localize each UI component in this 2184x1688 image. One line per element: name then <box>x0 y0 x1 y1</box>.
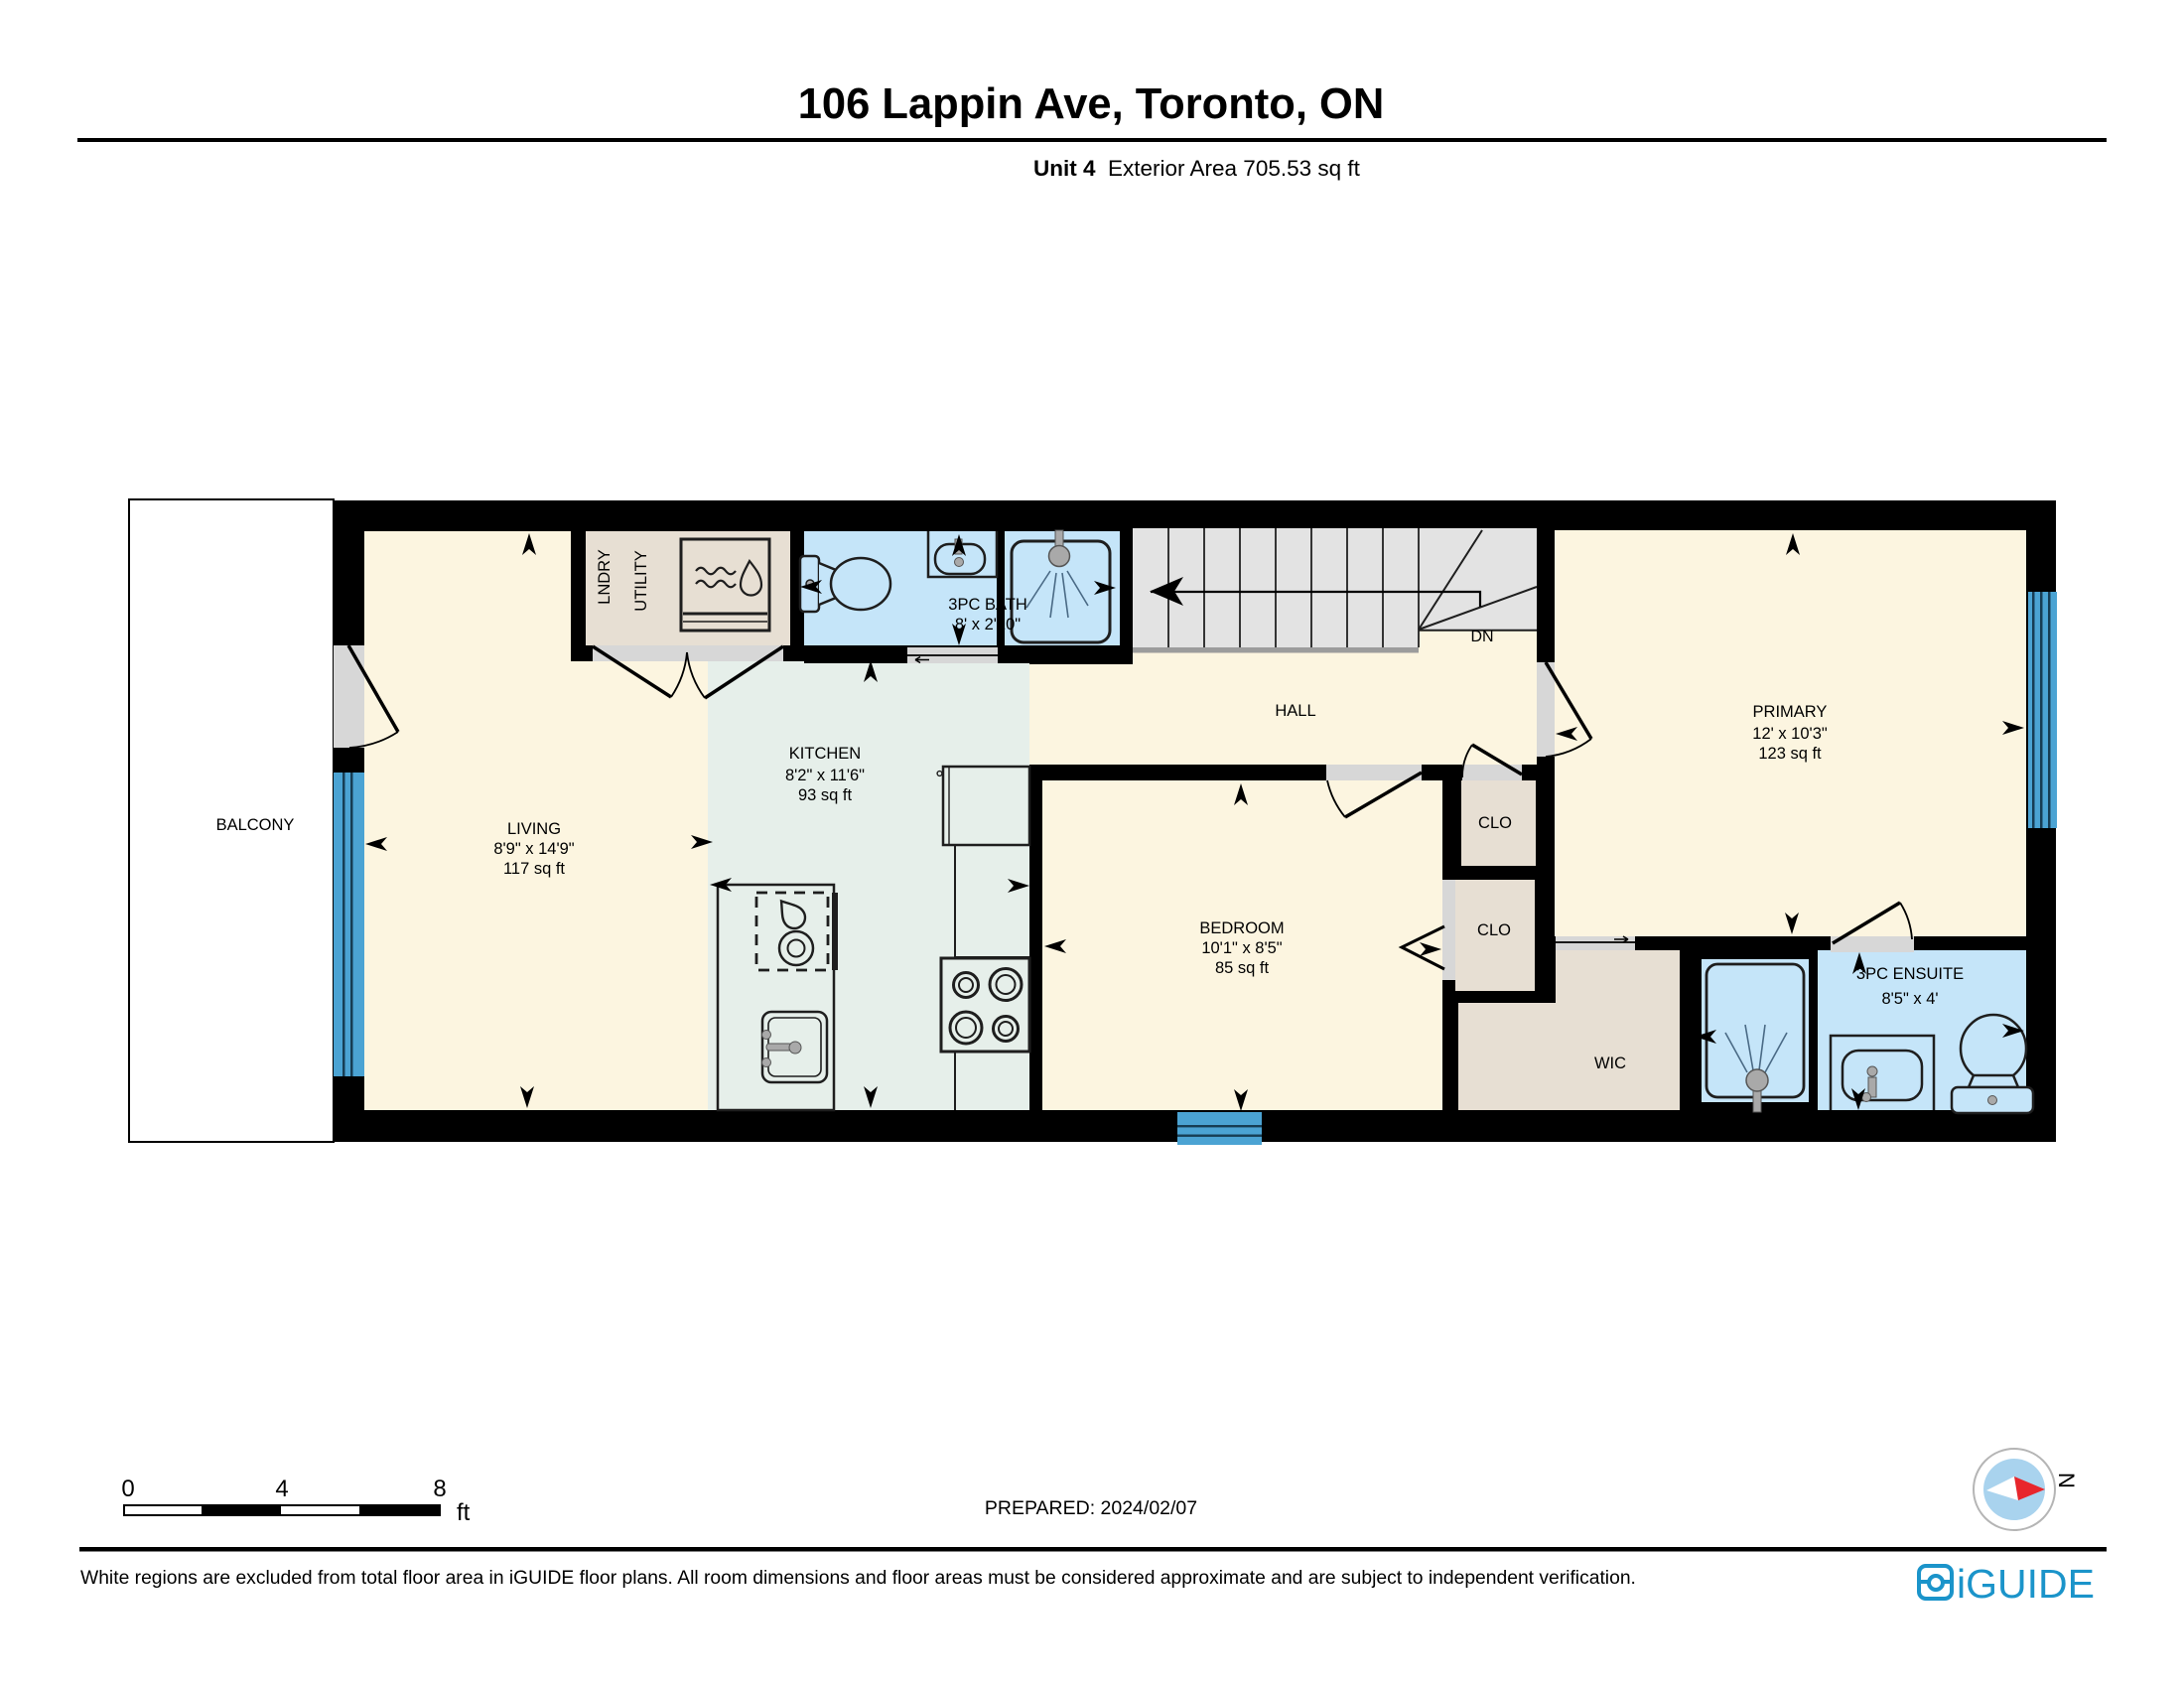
svg-text:3PC ENSUITE: 3PC ENSUITE <box>1856 965 1964 983</box>
svg-text:LIVING: LIVING <box>507 820 561 838</box>
svg-text:N: N <box>2054 1473 2079 1488</box>
svg-text:4: 4 <box>275 1476 288 1502</box>
svg-text:Exterior Area 705.53 sq ft: Exterior Area 705.53 sq ft <box>1108 156 1361 181</box>
svg-text:106 Lappin Ave, Toronto, ON: 106 Lappin Ave, Toronto, ON <box>798 80 1385 128</box>
svg-text:0: 0 <box>121 1476 134 1502</box>
svg-text:Unit 4: Unit 4 <box>1033 156 1096 181</box>
svg-text:LNDRY: LNDRY <box>596 549 614 605</box>
svg-text:85 sq ft: 85 sq ft <box>1215 959 1270 977</box>
svg-text:HALL: HALL <box>1275 702 1315 720</box>
svg-text:PREPARED: 2024/02/07: PREPARED: 2024/02/07 <box>985 1497 1197 1519</box>
svg-text:12' x 10'3": 12' x 10'3" <box>1752 725 1828 743</box>
svg-text:3PC BATH: 3PC BATH <box>948 596 1026 614</box>
svg-text:8'2" x 11'6": 8'2" x 11'6" <box>785 767 865 784</box>
svg-text:123 sq ft: 123 sq ft <box>1758 745 1822 763</box>
svg-text:ft: ft <box>457 1499 471 1526</box>
svg-text:10'1" x 8'5": 10'1" x 8'5" <box>1201 939 1282 957</box>
svg-text:BALCONY: BALCONY <box>216 816 295 834</box>
svg-text:CLO: CLO <box>1478 814 1512 832</box>
svg-text:93 sq ft: 93 sq ft <box>798 786 853 804</box>
svg-text:8' x 2'10": 8' x 2'10" <box>955 616 1021 633</box>
svg-text:White regions are excluded fro: White regions are excluded from total fl… <box>80 1568 1636 1589</box>
svg-text:KITCHEN: KITCHEN <box>789 745 861 763</box>
svg-text:iGUIDE: iGUIDE <box>1957 1561 2095 1607</box>
svg-text:8: 8 <box>433 1476 446 1502</box>
svg-text:PRIMARY: PRIMARY <box>1753 703 1828 721</box>
svg-text:8'5" x 4': 8'5" x 4' <box>1881 990 1938 1008</box>
svg-text:WIC: WIC <box>1594 1055 1626 1072</box>
svg-text:UTILITY: UTILITY <box>632 550 650 611</box>
svg-text:117 sq ft: 117 sq ft <box>503 860 565 878</box>
svg-text:CLO: CLO <box>1477 921 1511 939</box>
svg-text:8'9" x 14'9": 8'9" x 14'9" <box>493 840 574 858</box>
svg-text:BEDROOM: BEDROOM <box>1199 919 1284 937</box>
svg-text:DN: DN <box>1470 629 1493 645</box>
